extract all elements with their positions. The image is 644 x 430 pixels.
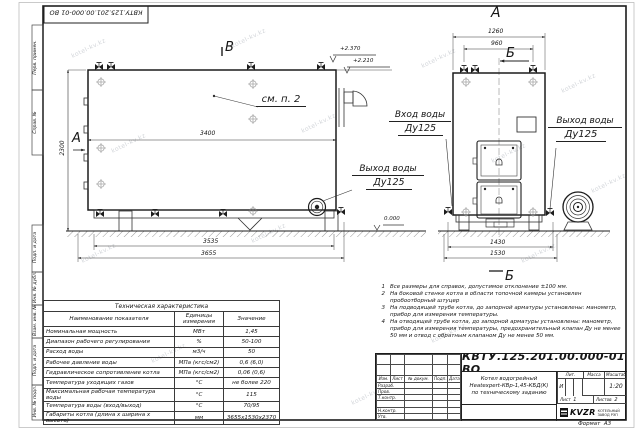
table-header-row: Наименование показателя Единицы измерени… (44, 312, 280, 327)
doc-number: КВТУ.125.201.00.000-01 ВО (461, 354, 627, 372)
table-row: Номинальная мощностьМВт1,45 (44, 327, 280, 337)
revision-header-row: Изм. Лист № докум. Подп. Дата (377, 375, 461, 382)
param-unit: МПа (кгс/см2) (175, 368, 224, 378)
lit-cell-2 (566, 379, 575, 396)
product-name-line2: Heatexpert-КВр-1,45-КБД(К) (462, 383, 556, 390)
dim-960: 960 (491, 41, 502, 47)
product-name-line3: по техническому заданию (462, 390, 556, 397)
dim-3655: 3655 (201, 251, 216, 257)
company-line2: ЗАВОД РЭП (598, 413, 620, 417)
notes-list: 1Все размеры для справок, допустимое отк… (377, 284, 623, 340)
ground-hatch (66, 232, 426, 238)
param-name: Диапазон рабочего регулирования (44, 337, 175, 347)
blank-cell (448, 355, 461, 365)
param-value: 50-100 (224, 337, 280, 347)
sheet-value: 1 (573, 397, 576, 403)
sheet-label: Лист (560, 397, 571, 402)
param-value: 0,6 (6,0) (224, 357, 280, 367)
outlet-water-label: Выход воды (352, 165, 424, 176)
param-unit: °С (175, 378, 224, 388)
table-row: Температура уходящих газов°Сне более 220 (44, 378, 280, 388)
col-list: Лист (391, 375, 405, 382)
param-name: Расход воды (44, 347, 175, 357)
table-row: Гидравлическое сопротивление котлаМПа (к… (44, 368, 280, 378)
drawing-sheet: kotel-kv.kz kotel-kv.kz kotel-kv.kz kote… (0, 0, 644, 430)
revision-row (377, 365, 461, 375)
company-logo-row: KVZR КОТЕЛЬНЫЙ ЗАВОД РЭП (557, 404, 627, 421)
elevation-2210: +2.210 (353, 59, 373, 65)
sheets-label: Листов (596, 397, 612, 402)
sheet-cell: Лист 1 (557, 396, 593, 404)
table-row: Диапазон рабочего регулирования%50-100 (44, 337, 280, 347)
param-name: Максимальная рабочая температура воды (44, 388, 175, 401)
tech-characteristics-table: Техническая характеристика Наименование … (43, 300, 280, 425)
col-date: Дата (448, 375, 461, 382)
dim-1430: 1430 (490, 240, 505, 246)
blank-cell (448, 413, 461, 419)
water-outlet-flange (309, 199, 326, 216)
col-header-value: Значение (224, 312, 280, 327)
dim-1260: 1260 (488, 29, 503, 35)
company-name: КОТЕЛЬНЫЙ ЗАВОД РЭП (598, 409, 620, 417)
margin-label: Инв. № подл. (34, 385, 39, 418)
param-value: 70/95 (224, 401, 280, 411)
boiler-front-view (438, 33, 610, 271)
table-title-row: Техническая характеристика (44, 301, 280, 312)
param-value: 50 (224, 347, 280, 357)
scale-value: 1:20 (604, 379, 627, 396)
margin-label: Подп. и дата (34, 338, 39, 383)
furnace-doors (473, 141, 521, 218)
company-line1: КОТЕЛЬНЫЙ (598, 409, 620, 413)
format-value: А3 (604, 421, 611, 427)
param-unit: м3/ч (175, 347, 224, 357)
blank-cell (377, 355, 391, 365)
note-text: Все размеры для справок, допустимое откл… (390, 284, 623, 291)
blank-cell (433, 413, 448, 419)
product-name: Котел водогрейный Heatexpert-КВр-1,45-КБ… (461, 372, 557, 404)
product-name-line1: Котел водогрейный (462, 376, 556, 383)
view-a-letter: А (72, 132, 81, 145)
param-value: 115 (224, 388, 280, 401)
blank-cell (405, 355, 433, 365)
section-b-bottom-letter: Б (505, 270, 514, 283)
note-item: 1Все размеры для справок, допустимое отк… (377, 284, 623, 291)
lit-cell-3 (574, 379, 583, 396)
margin-label: Инв. № дубл. (34, 272, 39, 303)
margin-label: Подп. и дата (34, 225, 39, 270)
param-value: 0,06 (0,6) (224, 368, 280, 378)
note-text: На подводящей трубе котла, до запорной а… (390, 305, 623, 319)
dim-3400: 3400 (200, 131, 215, 137)
role-row: Утв. (377, 413, 461, 419)
note-item: 4На отводящей трубе котла, до запорной а… (377, 319, 623, 340)
note-number: 4 (377, 319, 385, 340)
table-row: Расход водым3/ч50 (44, 347, 280, 357)
param-value: не более 220 (224, 378, 280, 388)
note-number: 2 (377, 291, 385, 305)
blank-cell (377, 365, 391, 375)
param-name: Температура воды (вход/выход) (44, 401, 175, 411)
param-name: Номинальная мощность (44, 327, 175, 337)
margin-label: Взам. инв. № (34, 305, 39, 336)
param-name: Рабочее давление воды (44, 357, 175, 367)
section-v-letter: В (225, 41, 234, 54)
callout-see-item-2: см. п. 2 (256, 95, 306, 107)
note-number: 3 (377, 305, 385, 319)
lit-value: И (557, 379, 566, 396)
boiler-side-view (66, 47, 426, 262)
blank-cell (405, 365, 433, 375)
scale-header: Масштаб (604, 372, 627, 379)
margin-label: Справ. № (34, 92, 39, 153)
blank-cell (405, 413, 433, 419)
table-row: Рабочее давление водыМПа (кгс/см2)0,6 (6… (44, 357, 280, 367)
top-stamp-doc-number: КВТУ.125.201.00.000-01 ВО (44, 9, 148, 16)
elevation-zero: 0.000 (384, 217, 400, 223)
kvzr-logo-icon (560, 408, 568, 417)
col-izm: Изм. (377, 375, 391, 382)
role-label: Утв. (377, 413, 405, 419)
outlet-dn-label-front: Ду125 (556, 130, 606, 142)
callout-leader (213, 95, 258, 107)
note-item: 3На подводящей трубе котла, до запорной … (377, 305, 623, 319)
blank-cell (391, 355, 405, 365)
param-unit: % (175, 337, 224, 347)
elevation-2370: +2.370 (340, 47, 360, 53)
param-name: Температура уходящих газов (44, 378, 175, 388)
param-unit: МПа (кгс/см2) (175, 357, 224, 367)
view-a-title: А (491, 6, 501, 20)
col-sign: Подп. (433, 375, 448, 382)
margin-label: Перв. примен. (34, 27, 39, 88)
blank-cell (391, 365, 405, 375)
mass-value (583, 379, 604, 396)
kvzr-logo-text: KVZR (570, 408, 596, 417)
note-text: На отводящей трубе котла, до запорной ар… (390, 319, 623, 340)
blank-cell (448, 365, 461, 375)
blank-cell (433, 355, 448, 365)
table-row: Максимальная рабочая температура воды°С1… (44, 388, 280, 401)
param-value: 3655х1530х2370 (224, 412, 280, 425)
param-unit: °С (175, 388, 224, 401)
outlet-water-label-front: Выход воды (548, 117, 622, 128)
revision-row (377, 355, 461, 365)
table-title: Техническая характеристика (44, 301, 280, 312)
lit-mass-scale-block: Лит. Масса Масштаб И 1:20 Лист 1 Листов … (557, 372, 627, 421)
note-number: 1 (377, 284, 385, 291)
title-block: Изм. Лист № докум. Подп. Дата Разраб. Пр… (375, 353, 626, 420)
front-view-dimensions (444, 33, 557, 262)
table-row: Габариты котла (длина х ширина х высота)… (44, 412, 280, 425)
note-text: На боковой стенке котла в области топочн… (390, 291, 623, 305)
param-value: 1,45 (224, 327, 280, 337)
param-unit: МВт (175, 327, 224, 337)
sheets-cell: Листов 2 (593, 396, 627, 404)
dim-1530: 1530 (490, 251, 505, 257)
approval-cell (461, 404, 557, 421)
note-item: 2На боковой стенке котла в области топоч… (377, 291, 623, 305)
mass-header: Масса (583, 372, 604, 379)
param-name: Габариты котла (длина х ширина х высота) (44, 412, 175, 425)
param-unit: °С (175, 401, 224, 411)
col-header-unit: Единицы измерения (175, 312, 224, 327)
section-b-top-letter: Б (506, 47, 515, 60)
outlet-dn-label: Ду125 (366, 178, 412, 190)
revision-table: Изм. Лист № докум. Подп. Дата Разраб. Пр… (376, 354, 461, 420)
inlet-dn-label: Ду125 (398, 124, 443, 136)
elevation-marks (330, 55, 404, 230)
sheets-value: 2 (614, 397, 617, 403)
param-unit: мм (175, 412, 224, 425)
dim-2300: 2300 (60, 128, 66, 168)
col-doc: № докум. (405, 375, 433, 382)
format-label: Формат (578, 421, 600, 427)
blank-cell (433, 365, 448, 375)
param-name: Гидравлическое сопротивление котла (44, 368, 175, 378)
lit-header: Лит. (557, 372, 583, 379)
fan (563, 192, 593, 230)
table-row: Температура воды (вход/выход)°С70/95 (44, 401, 280, 411)
col-header-name: Наименование показателя (44, 312, 175, 327)
format-note: Формат А3 (578, 422, 611, 428)
inlet-water-label: Вход воды (389, 111, 451, 122)
dim-3535: 3535 (203, 239, 218, 245)
